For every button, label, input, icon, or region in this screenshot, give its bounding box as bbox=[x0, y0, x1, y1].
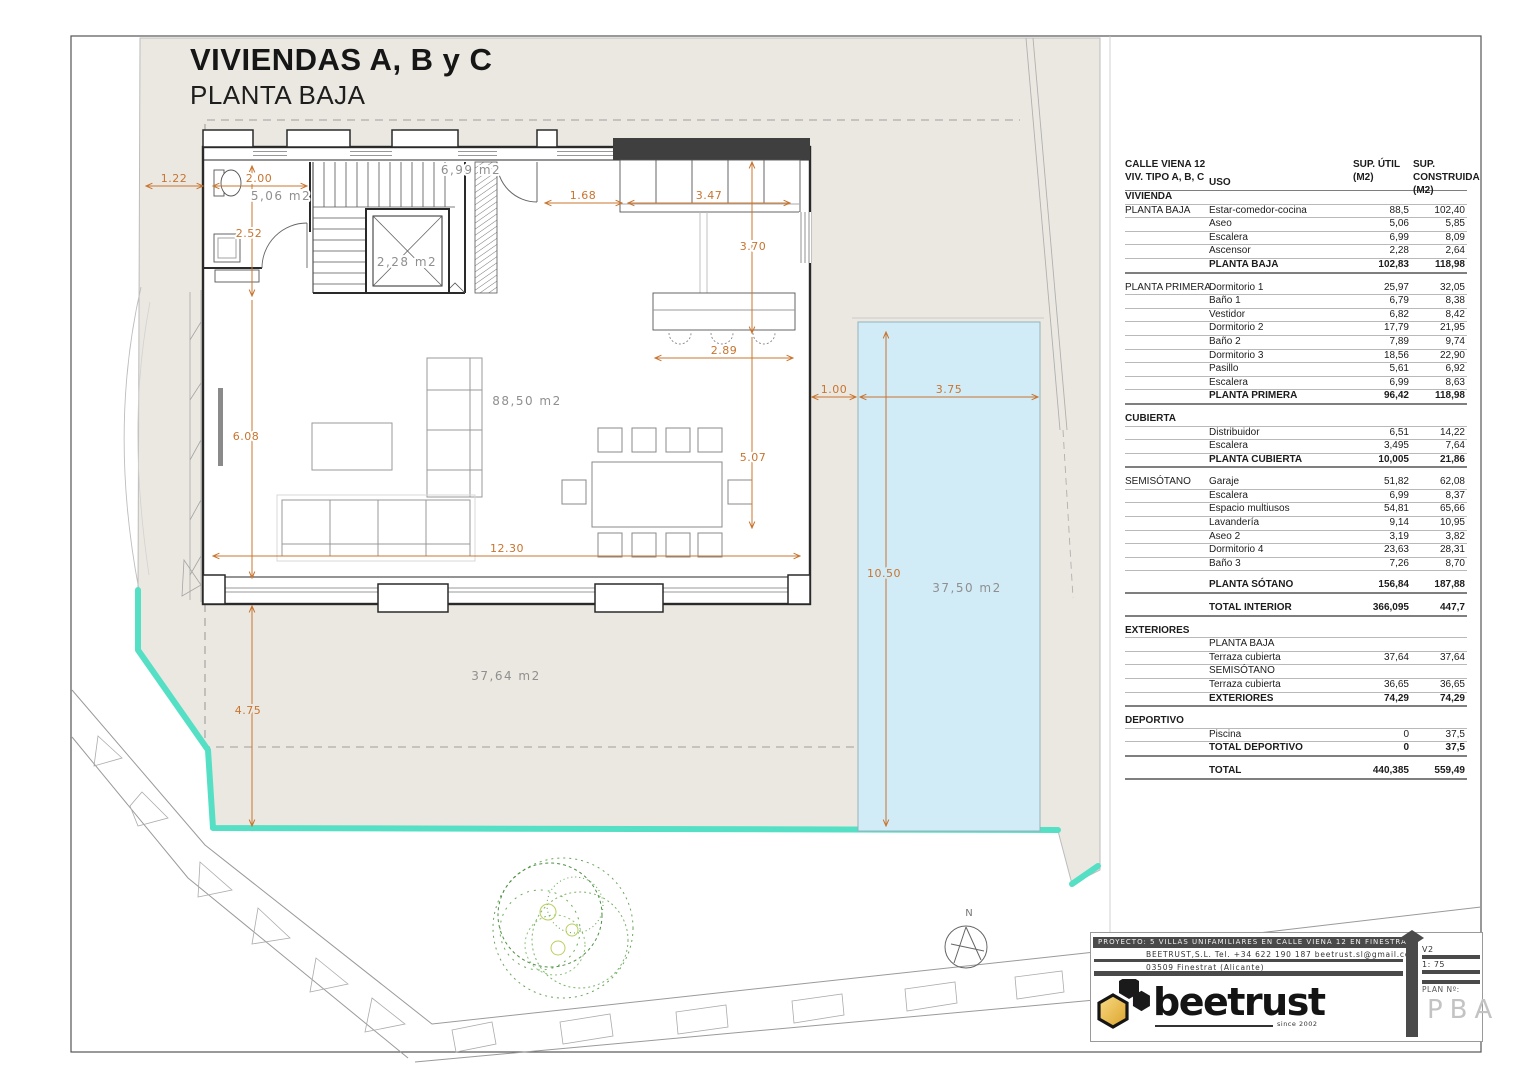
page-subtitle: PLANTA BAJA bbox=[190, 80, 492, 111]
svg-text:10.50: 10.50 bbox=[867, 567, 901, 580]
cell-sup-util: 6,99 bbox=[1321, 377, 1409, 390]
cell-uso: Escalera bbox=[1209, 490, 1321, 503]
cell-section bbox=[1125, 232, 1209, 245]
cell-section bbox=[1125, 405, 1209, 413]
cell-section bbox=[1125, 638, 1209, 651]
table-row: Baño 1 6,79 8,38 bbox=[1125, 295, 1467, 309]
cell-uso: Dormitorio 1 bbox=[1209, 282, 1321, 295]
cell-sup-util: 5,61 bbox=[1321, 363, 1409, 376]
cell-sup-construida: 118,98 bbox=[1409, 259, 1465, 272]
cell-section bbox=[1125, 571, 1209, 579]
table-row: CUBIERTA bbox=[1125, 413, 1467, 427]
logo-underline bbox=[1155, 1025, 1273, 1027]
cell-section bbox=[1125, 765, 1209, 778]
cell-section bbox=[1125, 594, 1209, 602]
cell-uso: Baño 1 bbox=[1209, 295, 1321, 308]
svg-text:3.75: 3.75 bbox=[936, 383, 963, 396]
logo-text: beetrust bbox=[1153, 980, 1325, 1024]
cell-section bbox=[1125, 377, 1209, 390]
cell-sup-construida: 36,65 bbox=[1409, 679, 1465, 692]
cell-uso: Lavandería bbox=[1209, 517, 1321, 530]
cell-section bbox=[1125, 602, 1209, 615]
cell-section: CUBIERTA bbox=[1125, 413, 1209, 426]
cell-uso: Espacio multiusos bbox=[1209, 503, 1321, 516]
cell-sup-construida: 28,31 bbox=[1409, 544, 1465, 557]
cell-sup-construida: 8,42 bbox=[1409, 309, 1465, 322]
table-row: SEMISÓTANO Garaje 51,82 62,08 bbox=[1125, 476, 1467, 490]
cell-section bbox=[1125, 322, 1209, 335]
table-row: Baño 3 7,26 8,70 bbox=[1125, 558, 1467, 572]
cell-section bbox=[1125, 729, 1209, 742]
cell-sup-construida: 21,86 bbox=[1409, 454, 1465, 467]
cell-sup-util: 0 bbox=[1321, 729, 1409, 742]
scale-label: 1: 75 bbox=[1422, 960, 1445, 969]
cell-sup-util bbox=[1321, 638, 1409, 651]
cell-sup-construida: 62,08 bbox=[1409, 476, 1465, 489]
table-row bbox=[1125, 405, 1467, 413]
contact-line: BEETRUST,S.L. Tel. +34 622 190 187 beetr… bbox=[1146, 950, 1446, 959]
cell-section bbox=[1125, 390, 1209, 403]
cell-sup-util: 3,19 bbox=[1321, 531, 1409, 544]
cell-uso: Dormitorio 3 bbox=[1209, 350, 1321, 363]
svg-text:2.52: 2.52 bbox=[236, 227, 263, 240]
cell-sup-construida bbox=[1409, 625, 1465, 638]
cell-uso: TOTAL DEPORTIVO bbox=[1209, 742, 1321, 755]
tree bbox=[493, 858, 633, 998]
divider bbox=[1422, 955, 1480, 959]
cell-uso: PLANTA SÓTANO bbox=[1209, 579, 1321, 592]
table-row: Ascensor 2,28 2,64 bbox=[1125, 245, 1467, 259]
cell-sup-construida: 2,64 bbox=[1409, 245, 1465, 258]
table-row: Dormitorio 4 23,63 28,31 bbox=[1125, 544, 1467, 558]
table-row: Dormitorio 3 18,56 22,90 bbox=[1125, 350, 1467, 364]
cell-uso: Escalera bbox=[1209, 232, 1321, 245]
cell-uso: PLANTA BAJA bbox=[1209, 259, 1321, 272]
cell-section bbox=[1125, 363, 1209, 376]
cell-uso: Dormitorio 2 bbox=[1209, 322, 1321, 335]
svg-text:12.30: 12.30 bbox=[490, 542, 524, 555]
cell-uso: Distribuidor bbox=[1209, 427, 1321, 440]
cell-sup-util: 9,14 bbox=[1321, 517, 1409, 530]
window-right bbox=[799, 212, 811, 263]
cell-section bbox=[1125, 558, 1209, 571]
page-title: VIVIENDAS A, B y C bbox=[190, 44, 492, 77]
cell-sup-util: 6,99 bbox=[1321, 490, 1409, 503]
divider bbox=[1094, 959, 1403, 962]
table-row: PLANTA BAJA 102,83 118,98 bbox=[1125, 259, 1467, 274]
table-row: EXTERIORES 74,29 74,29 bbox=[1125, 693, 1467, 708]
cell-section bbox=[1125, 679, 1209, 692]
pantry-closet bbox=[475, 162, 497, 293]
svg-text:88,50 m2: 88,50 m2 bbox=[492, 394, 562, 408]
cell-uso bbox=[1209, 757, 1321, 765]
cell-uso: EXTERIORES bbox=[1209, 693, 1321, 706]
svg-text:1.68: 1.68 bbox=[570, 189, 597, 202]
table-row: PLANTA BAJA bbox=[1125, 638, 1467, 652]
cell-uso bbox=[1209, 594, 1321, 602]
cell-sup-construida: 7,64 bbox=[1409, 440, 1465, 453]
cell-sup-util bbox=[1321, 707, 1409, 715]
cell-sup-construida bbox=[1409, 757, 1465, 765]
cell-sup-util: 36,65 bbox=[1321, 679, 1409, 692]
table-row bbox=[1125, 617, 1467, 625]
cell-sup-util bbox=[1321, 757, 1409, 765]
cell-sup-util bbox=[1321, 413, 1409, 426]
table-row: DEPORTIVO bbox=[1125, 715, 1467, 729]
svg-text:3.47: 3.47 bbox=[696, 189, 723, 202]
table-row bbox=[1125, 757, 1467, 765]
table-row: TOTAL DEPORTIVO 0 37,5 bbox=[1125, 742, 1467, 757]
cell-sup-construida bbox=[1409, 594, 1465, 602]
cell-uso: PLANTA BAJA bbox=[1209, 638, 1321, 651]
cell-sup-construida bbox=[1409, 191, 1465, 204]
cell-sup-construida bbox=[1409, 715, 1465, 728]
cell-sup-construida: 447,7 bbox=[1409, 602, 1465, 615]
table-body: VIVIENDA PLANTA BAJA Estar-comedor-cocin… bbox=[1125, 191, 1467, 780]
cell-section: DEPORTIVO bbox=[1125, 715, 1209, 728]
cell-sup-construida: 3,82 bbox=[1409, 531, 1465, 544]
table-row: Piscina 0 37,5 bbox=[1125, 729, 1467, 743]
table-header: CALLE VIENA 12 VIV. TIPO A, B, C USO SUP… bbox=[1125, 158, 1467, 191]
cell-uso: Dormitorio 4 bbox=[1209, 544, 1321, 557]
cell-sup-util: 23,63 bbox=[1321, 544, 1409, 557]
cell-uso bbox=[1209, 715, 1321, 728]
cell-sup-construida: 8,70 bbox=[1409, 558, 1465, 571]
cell-uso bbox=[1209, 468, 1321, 476]
table-row: Pasillo 5,61 6,92 bbox=[1125, 363, 1467, 377]
table-row: VIVIENDA bbox=[1125, 191, 1467, 205]
cell-sup-util bbox=[1321, 191, 1409, 204]
svg-text:2,28 m2: 2,28 m2 bbox=[377, 255, 437, 269]
cell-sup-util: 6,79 bbox=[1321, 295, 1409, 308]
cell-uso bbox=[1209, 617, 1321, 625]
cell-uso bbox=[1209, 405, 1321, 413]
cell-sup-util bbox=[1321, 468, 1409, 476]
cell-uso: Aseo bbox=[1209, 218, 1321, 231]
cell-sup-construida: 37,5 bbox=[1409, 742, 1465, 755]
cell-section: EXTERIORES bbox=[1125, 625, 1209, 638]
cell-sup-util bbox=[1321, 405, 1409, 413]
kitchen-exterior-wall bbox=[613, 138, 810, 160]
table-row: Lavandería 9,14 10,95 bbox=[1125, 517, 1467, 531]
cell-sup-util bbox=[1321, 625, 1409, 638]
cell-sup-construida: 118,98 bbox=[1409, 390, 1465, 403]
table-row: PLANTA BAJA Estar-comedor-cocina 88,5 10… bbox=[1125, 205, 1467, 219]
cell-sup-construida: 65,66 bbox=[1409, 503, 1465, 516]
cell-sup-util: 96,42 bbox=[1321, 390, 1409, 403]
cell-sup-construida bbox=[1409, 413, 1465, 426]
table-row: Escalera 6,99 8,09 bbox=[1125, 232, 1467, 246]
cell-uso: Aseo 2 bbox=[1209, 531, 1321, 544]
table-row: PLANTA PRIMERA 96,42 118,98 bbox=[1125, 390, 1467, 405]
svg-text:6.08: 6.08 bbox=[233, 430, 260, 443]
table-row: Espacio multiusos 54,81 65,66 bbox=[1125, 503, 1467, 517]
cell-section bbox=[1125, 757, 1209, 765]
cell-sup-util: 74,29 bbox=[1321, 693, 1409, 706]
cell-section bbox=[1125, 617, 1209, 625]
svg-text:2.89: 2.89 bbox=[711, 344, 738, 357]
table-row: Dormitorio 2 17,79 21,95 bbox=[1125, 322, 1467, 336]
divider-vertical bbox=[1406, 937, 1418, 1037]
cell-section bbox=[1125, 274, 1209, 282]
divider bbox=[1422, 980, 1480, 984]
cell-sup-util: 2,28 bbox=[1321, 245, 1409, 258]
cell-sup-construida: 8,63 bbox=[1409, 377, 1465, 390]
table-row bbox=[1125, 274, 1467, 282]
table-row: TOTAL 440,385 559,49 bbox=[1125, 765, 1467, 780]
cell-sup-util: 156,84 bbox=[1321, 579, 1409, 592]
table-row: PLANTA CUBIERTA 10,005 21,86 bbox=[1125, 454, 1467, 469]
cell-section bbox=[1125, 742, 1209, 755]
table-row: Baño 2 7,89 9,74 bbox=[1125, 336, 1467, 350]
cell-sup-construida bbox=[1409, 274, 1465, 282]
cell-uso: TOTAL INTERIOR bbox=[1209, 602, 1321, 615]
cell-sup-util: 18,56 bbox=[1321, 350, 1409, 363]
cell-section bbox=[1125, 544, 1209, 557]
cell-sup-util: 7,89 bbox=[1321, 336, 1409, 349]
svg-text:5,06 m2: 5,06 m2 bbox=[251, 189, 311, 203]
plan-number: PBA bbox=[1427, 995, 1499, 1025]
cell-section bbox=[1125, 218, 1209, 231]
cell-uso: Escalera bbox=[1209, 440, 1321, 453]
cell-sup-construida bbox=[1409, 405, 1465, 413]
cell-sup-construida bbox=[1409, 468, 1465, 476]
cell-section bbox=[1125, 531, 1209, 544]
cell-sup-util: 7,26 bbox=[1321, 558, 1409, 571]
project-title-bar: PROYECTO: 5 VILLAS UNIFAMILIARES EN CALL… bbox=[1093, 937, 1411, 948]
cell-uso: Piscina bbox=[1209, 729, 1321, 742]
cell-section: PLANTA PRIMERA bbox=[1125, 282, 1209, 295]
cell-section bbox=[1125, 665, 1209, 678]
cell-sup-util bbox=[1321, 594, 1409, 602]
cell-section: PLANTA BAJA bbox=[1125, 205, 1209, 218]
svg-text:4.75: 4.75 bbox=[235, 704, 262, 717]
cell-sup-construida: 21,95 bbox=[1409, 322, 1465, 335]
cell-section bbox=[1125, 350, 1209, 363]
cell-section: VIVIENDA bbox=[1125, 191, 1209, 204]
cell-sup-construida: 5,85 bbox=[1409, 218, 1465, 231]
cell-sup-util: 54,81 bbox=[1321, 503, 1409, 516]
svg-text:2.00: 2.00 bbox=[246, 172, 273, 185]
cell-uso: Terraza cubierta bbox=[1209, 679, 1321, 692]
svg-text:37,64 m2: 37,64 m2 bbox=[471, 669, 541, 683]
cell-section bbox=[1125, 295, 1209, 308]
cell-sup-construida bbox=[1409, 638, 1465, 651]
table-row: Escalera 6,99 8,63 bbox=[1125, 377, 1467, 391]
cell-sup-util bbox=[1321, 715, 1409, 728]
toilet-icon bbox=[214, 170, 241, 196]
table-row: EXTERIORES bbox=[1125, 625, 1467, 639]
cell-sup-construida: 9,74 bbox=[1409, 336, 1465, 349]
cell-uso: PLANTA CUBIERTA bbox=[1209, 454, 1321, 467]
cell-sup-construida bbox=[1409, 707, 1465, 715]
cell-sup-construida: 74,29 bbox=[1409, 693, 1465, 706]
svg-text:N: N bbox=[965, 908, 972, 919]
table-row: Aseo 2 3,19 3,82 bbox=[1125, 531, 1467, 545]
cell-sup-util: 17,79 bbox=[1321, 322, 1409, 335]
cell-section bbox=[1125, 454, 1209, 467]
cell-sup-util bbox=[1321, 617, 1409, 625]
cell-sup-construida: 102,40 bbox=[1409, 205, 1465, 218]
logo-tagline: since 2002 bbox=[1277, 1020, 1318, 1028]
cell-section bbox=[1125, 517, 1209, 530]
table-row: Escalera 6,99 8,37 bbox=[1125, 490, 1467, 504]
table-row: Escalera 3,495 7,64 bbox=[1125, 440, 1467, 454]
cell-sup-util: 3,495 bbox=[1321, 440, 1409, 453]
cell-sup-util bbox=[1321, 665, 1409, 678]
cell-sup-construida: 37,64 bbox=[1409, 652, 1465, 665]
cell-uso bbox=[1209, 274, 1321, 282]
cell-sup-util bbox=[1321, 571, 1409, 579]
cell-sup-util: 10,005 bbox=[1321, 454, 1409, 467]
cell-uso: Garaje bbox=[1209, 476, 1321, 489]
cell-uso: Escalera bbox=[1209, 377, 1321, 390]
version-label: V2 bbox=[1422, 945, 1434, 954]
table-row bbox=[1125, 571, 1467, 579]
title-block: PROYECTO: 5 VILLAS UNIFAMILIARES EN CALL… bbox=[1090, 932, 1483, 1042]
table-header-uso: USO bbox=[1209, 177, 1231, 188]
table-row: Distribuidor 6,51 14,22 bbox=[1125, 427, 1467, 441]
cell-sup-construida bbox=[1409, 617, 1465, 625]
cell-sup-util: 366,095 bbox=[1321, 602, 1409, 615]
cell-sup-util bbox=[1321, 274, 1409, 282]
cell-sup-construida: 32,05 bbox=[1409, 282, 1465, 295]
svg-text:37,50 m2: 37,50 m2 bbox=[932, 581, 1002, 595]
cell-uso bbox=[1209, 707, 1321, 715]
cell-sup-construida: 10,95 bbox=[1409, 517, 1465, 530]
cell-sup-construida: 8,38 bbox=[1409, 295, 1465, 308]
cell-section bbox=[1125, 652, 1209, 665]
cell-uso bbox=[1209, 191, 1321, 204]
table-row: Vestidor 6,82 8,42 bbox=[1125, 309, 1467, 323]
cell-uso: TOTAL bbox=[1209, 765, 1321, 778]
cell-sup-util: 0 bbox=[1321, 742, 1409, 755]
cell-sup-util: 51,82 bbox=[1321, 476, 1409, 489]
cell-sup-util: 37,64 bbox=[1321, 652, 1409, 665]
table-row bbox=[1125, 594, 1467, 602]
cell-uso: Terraza cubierta bbox=[1209, 652, 1321, 665]
table-row: SEMISÓTANO bbox=[1125, 665, 1467, 679]
cell-sup-construida: 8,37 bbox=[1409, 490, 1465, 503]
table-header-address: CALLE VIENA 12 VIV. TIPO A, B, C bbox=[1125, 158, 1205, 184]
cell-uso: Estar-comedor-cocina bbox=[1209, 205, 1321, 218]
cell-uso: Baño 3 bbox=[1209, 558, 1321, 571]
table-header-sup-util: SUP. ÚTIL (M2) bbox=[1353, 158, 1400, 184]
table-row: PLANTA PRIMERA Dormitorio 1 25,97 32,05 bbox=[1125, 282, 1467, 296]
svg-text:6,99 m2: 6,99 m2 bbox=[441, 163, 501, 177]
divider bbox=[1422, 970, 1480, 974]
drawing-sheet: 1.22 2.00 2.52 6.08 4.75 12.30 1.68 3.47… bbox=[0, 0, 1527, 1080]
tv-icon bbox=[218, 388, 223, 466]
cell-sup-construida: 14,22 bbox=[1409, 427, 1465, 440]
cell-sup-util: 6,82 bbox=[1321, 309, 1409, 322]
cell-section bbox=[1125, 309, 1209, 322]
table-row: PLANTA SÓTANO 156,84 187,88 bbox=[1125, 579, 1467, 594]
cell-section bbox=[1125, 707, 1209, 715]
table-row: Terraza cubierta 36,65 36,65 bbox=[1125, 679, 1467, 693]
cell-sup-util: 6,51 bbox=[1321, 427, 1409, 440]
cell-sup-util: 88,5 bbox=[1321, 205, 1409, 218]
cell-sup-construida: 22,90 bbox=[1409, 350, 1465, 363]
cell-section bbox=[1125, 579, 1209, 592]
svg-text:5.07: 5.07 bbox=[740, 451, 767, 464]
cell-uso: SEMISÓTANO bbox=[1209, 665, 1321, 678]
cell-section: SEMISÓTANO bbox=[1125, 476, 1209, 489]
cell-sup-util: 440,385 bbox=[1321, 765, 1409, 778]
svg-text:1.00: 1.00 bbox=[821, 383, 848, 396]
cell-uso bbox=[1209, 625, 1321, 638]
drawing-title: VIVIENDAS A, B y C PLANTA BAJA bbox=[190, 44, 492, 111]
cell-sup-construida: 37,5 bbox=[1409, 729, 1465, 742]
cell-uso: PLANTA PRIMERA bbox=[1209, 390, 1321, 403]
plan-number-label: PLAN Nº: bbox=[1422, 985, 1460, 994]
cell-sup-construida: 187,88 bbox=[1409, 579, 1465, 592]
cell-sup-util: 102,83 bbox=[1321, 259, 1409, 272]
cell-section bbox=[1125, 440, 1209, 453]
cell-sup-util: 6,99 bbox=[1321, 232, 1409, 245]
table-row: Aseo 5,06 5,85 bbox=[1125, 218, 1467, 232]
table-row bbox=[1125, 707, 1467, 715]
cell-uso: Baño 2 bbox=[1209, 336, 1321, 349]
cell-sup-util: 5,06 bbox=[1321, 218, 1409, 231]
cell-section bbox=[1125, 336, 1209, 349]
svg-text:3.70: 3.70 bbox=[740, 240, 767, 253]
cell-section bbox=[1125, 503, 1209, 516]
areas-table: CALLE VIENA 12 VIV. TIPO A, B, C USO SUP… bbox=[1125, 158, 1467, 780]
svg-text:1.22: 1.22 bbox=[161, 172, 188, 185]
cell-sup-util: 25,97 bbox=[1321, 282, 1409, 295]
cell-sup-construida: 8,09 bbox=[1409, 232, 1465, 245]
cell-uso: Vestidor bbox=[1209, 309, 1321, 322]
cell-section bbox=[1125, 693, 1209, 706]
table-row: TOTAL INTERIOR 366,095 447,7 bbox=[1125, 602, 1467, 617]
north-compass-icon: N bbox=[945, 908, 987, 968]
table-row: Terraza cubierta 37,64 37,64 bbox=[1125, 652, 1467, 666]
cell-uso bbox=[1209, 413, 1321, 426]
cell-section bbox=[1125, 259, 1209, 272]
cell-uso: Ascensor bbox=[1209, 245, 1321, 258]
cell-section bbox=[1125, 245, 1209, 258]
cell-sup-construida bbox=[1409, 665, 1465, 678]
cell-uso: Pasillo bbox=[1209, 363, 1321, 376]
cell-section bbox=[1125, 427, 1209, 440]
divider bbox=[1094, 971, 1403, 976]
cell-section bbox=[1125, 490, 1209, 503]
cell-sup-construida bbox=[1409, 571, 1465, 579]
cell-sup-construida: 6,92 bbox=[1409, 363, 1465, 376]
elevator bbox=[366, 209, 449, 293]
cell-sup-construida: 559,49 bbox=[1409, 765, 1465, 778]
